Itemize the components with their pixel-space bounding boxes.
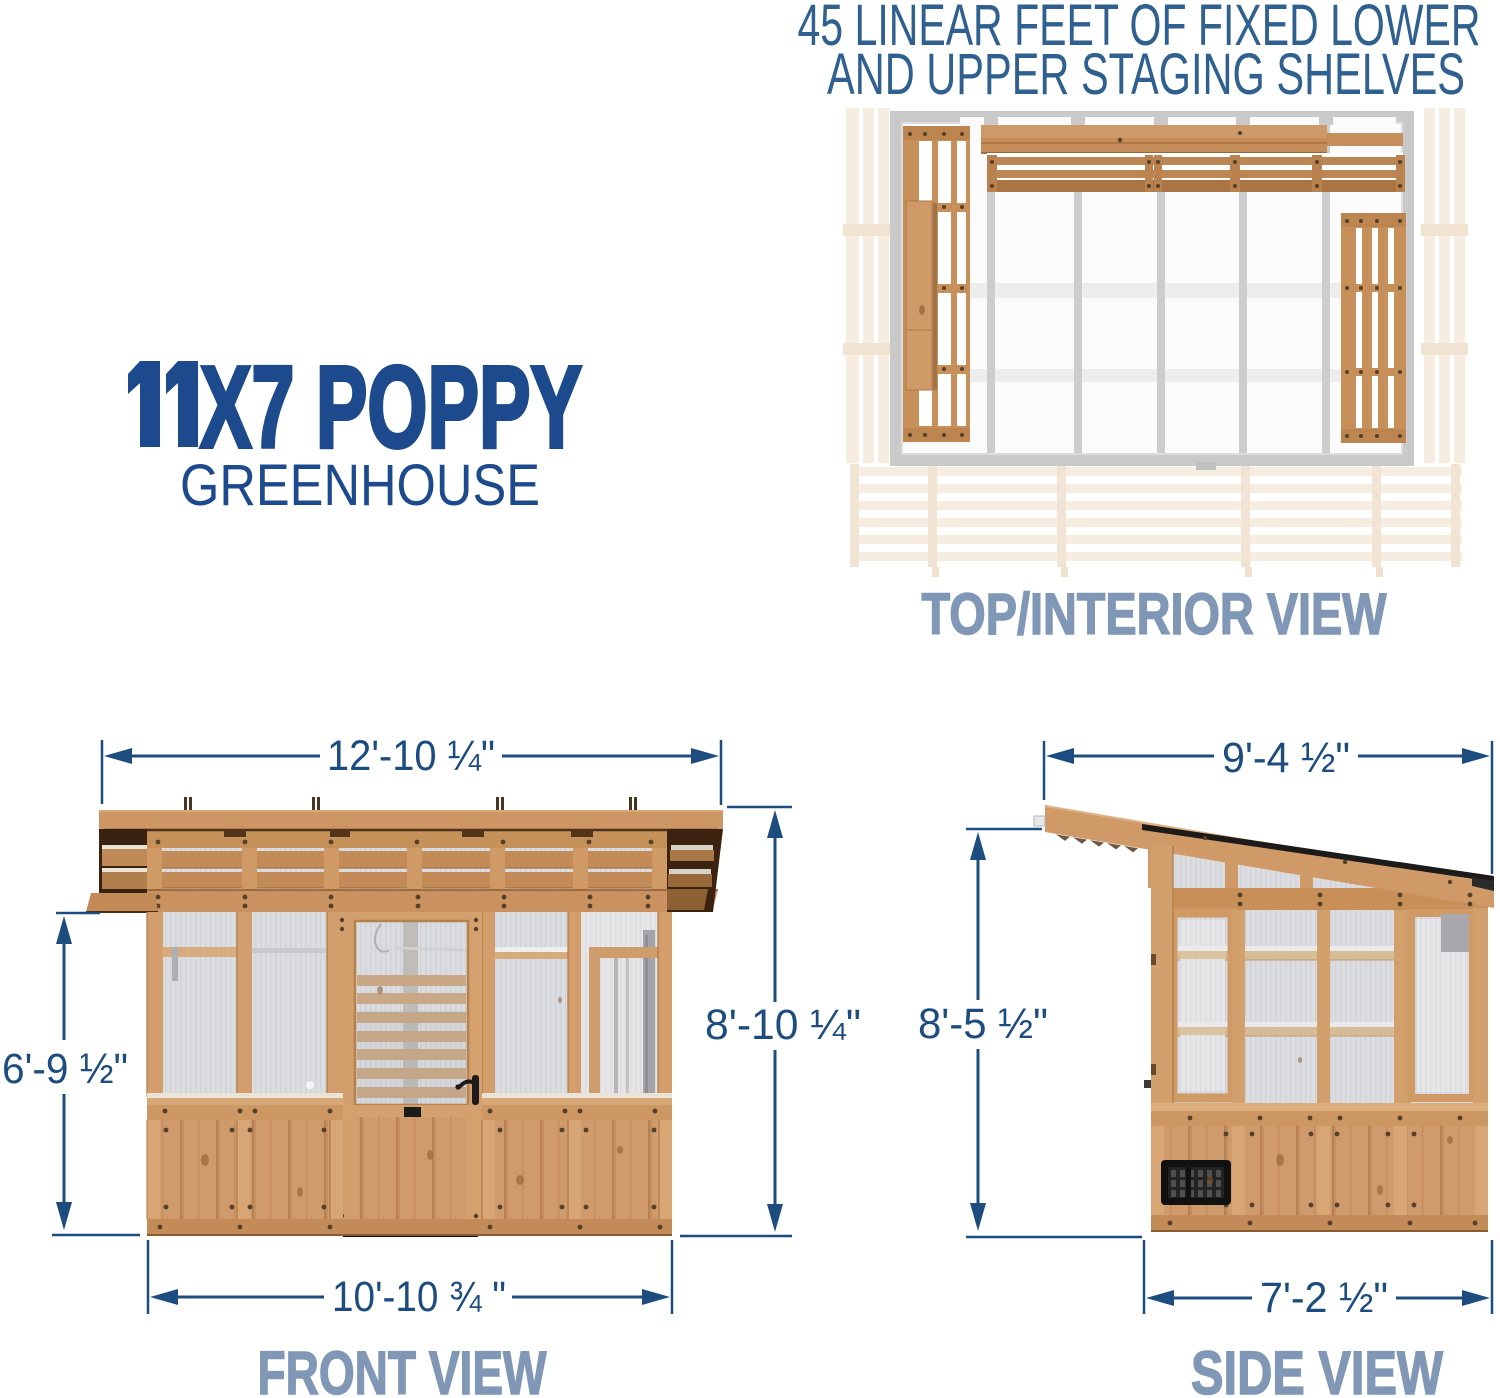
svg-text:8'-10 ¼": 8'-10 ¼" (705, 1001, 861, 1049)
svg-text:AND UPPER STAGING SHELVES: AND UPPER STAGING SHELVES (827, 42, 1465, 107)
svg-text:9'-4 ½": 9'-4 ½" (1222, 734, 1350, 782)
svg-text:7'-2 ½": 7'-2 ½" (1260, 1274, 1388, 1322)
svg-text:FRONT VIEW: FRONT VIEW (258, 1339, 547, 1398)
svg-text:6'-9 ½": 6'-9 ½" (2, 1045, 128, 1093)
svg-text:SIDE VIEW: SIDE VIEW (1191, 1339, 1443, 1398)
svg-text:TOP/INTERIOR VIEW: TOP/INTERIOR VIEW (922, 582, 1387, 647)
svg-text:8'-5 ½": 8'-5 ½" (918, 1000, 1048, 1048)
svg-text:GREENHOUSE: GREENHOUSE (180, 453, 540, 518)
svg-text:10'-10 ¾ ": 10'-10 ¾ " (332, 1273, 506, 1321)
svg-text:12'-10 ¼": 12'-10 ¼" (327, 732, 495, 780)
